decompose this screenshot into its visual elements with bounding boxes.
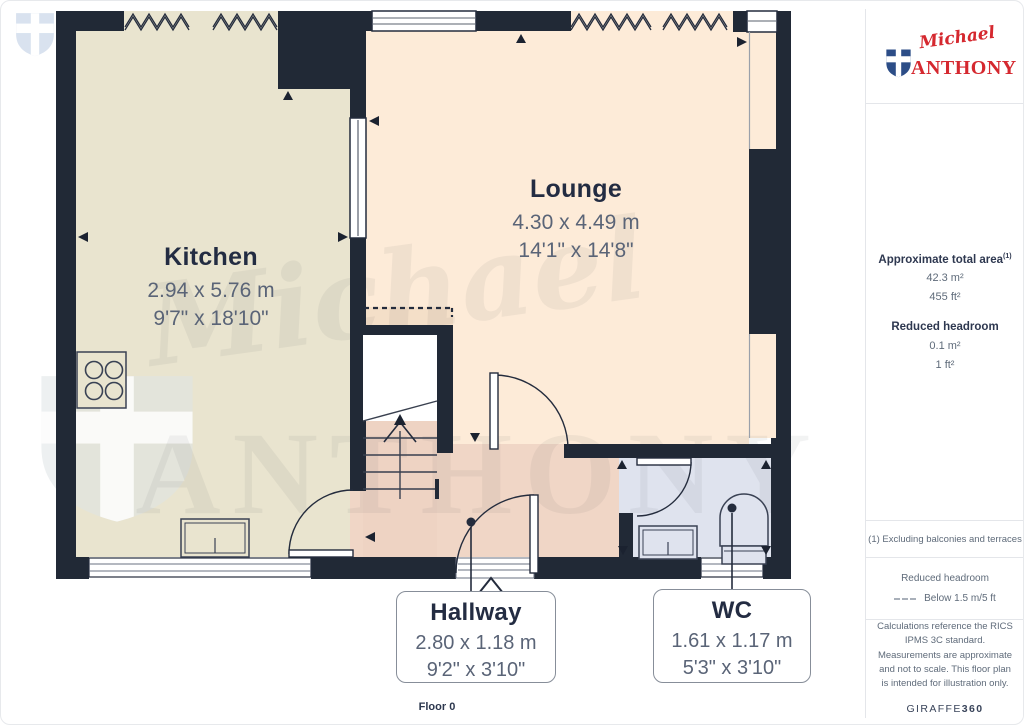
room-size-imperial: 5'3" x 3'10" xyxy=(654,655,810,682)
disclaimer: Calculations reference the RICS IPMS 3C … xyxy=(866,620,1024,718)
brand-shield-icon xyxy=(885,48,912,78)
floor-label: Floor 0 xyxy=(397,701,477,713)
lounge-alcove-top xyxy=(749,32,776,149)
wc-basin-icon xyxy=(639,526,697,559)
reduced-headroom-metric: 0.1 m² xyxy=(929,340,960,352)
window xyxy=(372,11,476,31)
room-size-metric: 2.80 x 1.18 m xyxy=(397,630,555,657)
room-name: Hallway xyxy=(397,599,555,627)
giraffe360-credit: GIRAFFE360 xyxy=(906,702,983,718)
legend-title: Reduced headroom xyxy=(901,573,989,584)
reduced-headroom-dash-icon xyxy=(894,598,916,600)
total-area-label: Approximate total area(1) xyxy=(878,253,1011,266)
kitchen-sink-icon xyxy=(181,519,249,557)
wc-callout: WC 1.61 x 1.17 m 5'3" x 3'10" xyxy=(653,589,811,683)
reduced-headroom-imperial: 1 ft² xyxy=(936,359,955,371)
area-footnote: (1) Excluding balconies and terraces xyxy=(866,521,1024,558)
legend: Reduced headroom Below 1.5 m/5 ft xyxy=(866,558,1024,620)
hob-icon xyxy=(77,352,126,408)
disclaimer-text: Calculations reference the RICS IPMS 3C … xyxy=(877,620,1013,691)
hallway-callout: Hallway 2.80 x 1.18 m 9'2" x 3'10" xyxy=(396,591,556,683)
total-area-imperial: 455 ft² xyxy=(929,291,960,303)
area-summary: Approximate total area(1) 42.3 m² 455 ft… xyxy=(866,104,1024,521)
info-sidebar: Michael ANTHONY Approximate total area(1… xyxy=(865,9,1024,718)
front-door-threshold xyxy=(456,558,534,578)
brand-logo: Michael ANTHONY xyxy=(866,9,1024,104)
footnote-marker: (1) xyxy=(1003,253,1012,260)
corner-shield-icon xyxy=(14,11,56,57)
toilet-icon xyxy=(720,494,768,564)
brand-script: Michael xyxy=(918,23,996,53)
reduced-headroom-label: Reduced headroom xyxy=(891,321,998,333)
window xyxy=(89,558,311,577)
room-size-imperial: 9'2" x 3'10" xyxy=(397,657,555,684)
total-area-metric: 42.3 m² xyxy=(926,272,963,284)
room-size-metric: 1.61 x 1.17 m xyxy=(654,628,810,655)
floorplan-page: Michael ANTHONY xyxy=(0,0,1024,725)
brand-caps: ANTHONY xyxy=(911,57,1017,80)
legend-item: Below 1.5 m/5 ft xyxy=(924,593,996,604)
stairwell-void xyxy=(363,335,437,421)
window xyxy=(747,11,777,32)
internal-window xyxy=(350,118,366,238)
room-name: WC xyxy=(654,597,810,625)
